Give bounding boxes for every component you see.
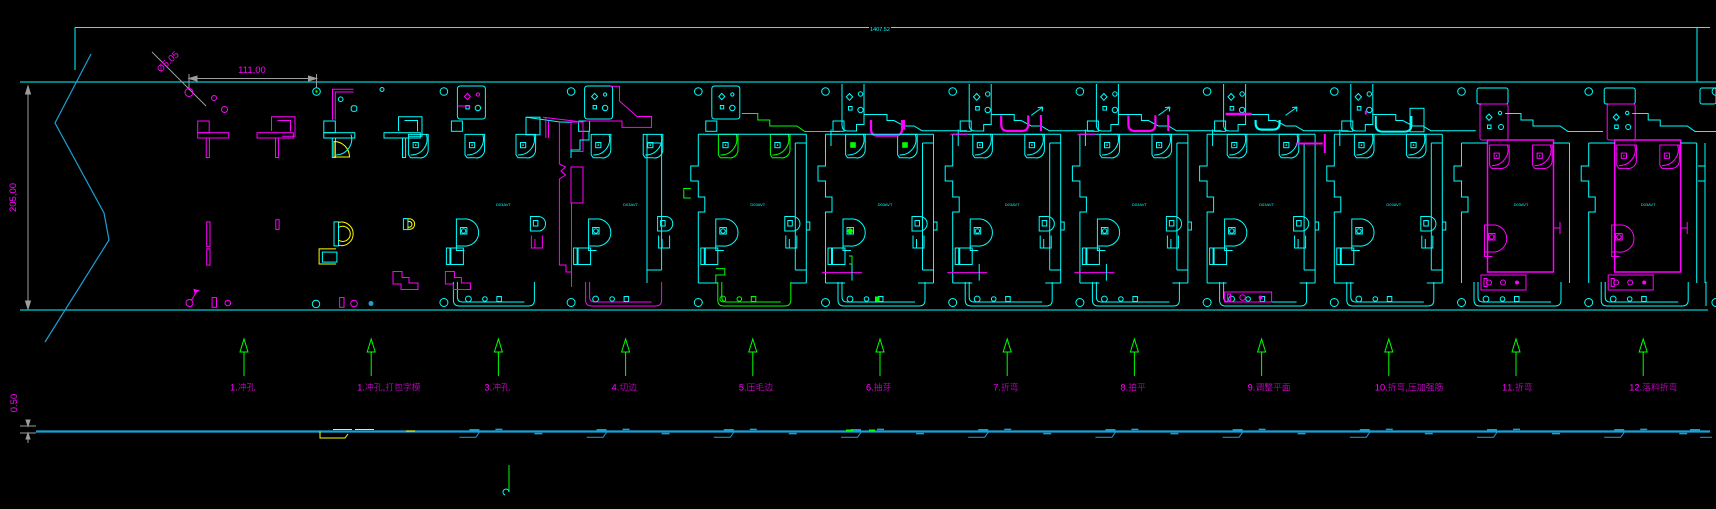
svg-text:D03AVT: D03AVT [1259, 202, 1274, 207]
svg-text:0.50: 0.50 [9, 394, 20, 413]
svg-text:D03AVT: D03AVT [1005, 202, 1020, 207]
svg-text:D03AVT: D03AVT [1514, 202, 1529, 207]
svg-text:D03AVT: D03AVT [1641, 202, 1656, 207]
svg-text:D03AVT: D03AVT [1386, 202, 1401, 207]
svg-text:1407.52: 1407.52 [870, 27, 890, 33]
svg-text:D03AVT: D03AVT [750, 202, 765, 207]
svg-text:D03AVT: D03AVT [1132, 202, 1147, 207]
svg-text:205,00: 205,00 [8, 183, 19, 212]
svg-text:D03AVT: D03AVT [496, 202, 511, 207]
svg-text:D03AVT: D03AVT [878, 202, 893, 207]
svg-text:111,00: 111,00 [238, 65, 266, 76]
svg-text:D03AVT: D03AVT [623, 202, 638, 207]
